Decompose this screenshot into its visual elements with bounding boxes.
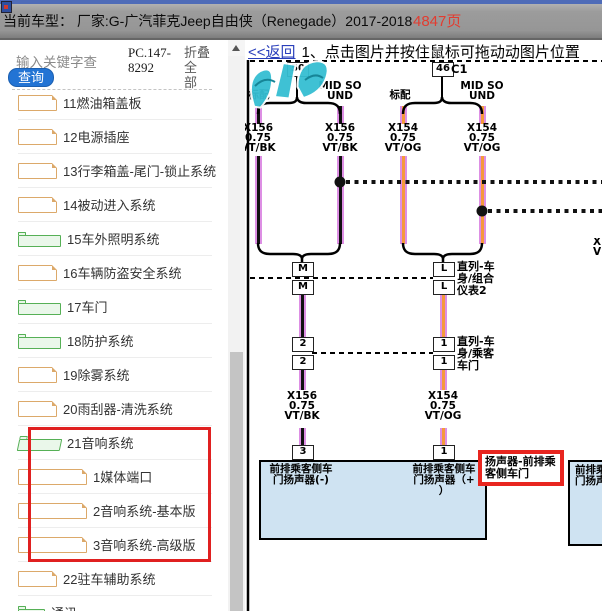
sidebar-item-label: 11燃油箱盖板	[63, 93, 142, 112]
file-icon	[18, 265, 57, 281]
wiring-diagram-image[interactable]: 50 46 C1 标配 MID SO UND 标配 MID SO UND X15…	[245, 40, 602, 611]
file-icon	[18, 537, 87, 553]
pin-box-3: 3	[292, 445, 314, 460]
sidebar-item-audio-base[interactable]: 2音响系统-基本版	[18, 494, 212, 528]
wire-label-x156-3: X156 0.75 VT/BK	[280, 391, 324, 421]
inline-pin-2-bottom: 2	[292, 355, 314, 370]
file-icon	[18, 95, 57, 111]
sidebar-item-label: 17车门	[67, 297, 107, 316]
file-icon	[18, 469, 87, 485]
sidebar-item-label: 15车外照明系统	[67, 229, 159, 248]
title-bar: 当前车型： 厂家:G-广汽菲克Jeep自由侠（Renegade）2017-201…	[0, 0, 602, 40]
wire-label-x154-1: X154 0.75 VT/OG	[381, 123, 425, 153]
window-top-edge	[0, 0, 602, 4]
file-icon	[18, 571, 57, 587]
sidebar-scrollbar[interactable]	[228, 40, 245, 611]
page-count: 4847页	[413, 10, 461, 31]
back-link[interactable]: <<返回	[248, 44, 296, 60]
wire-label-x156-1: X156 0.75 VT/BK	[245, 123, 280, 153]
current-vehicle-text: 当前车型： 厂家:G-广汽菲克Jeep自由侠（Renegade）2017-201…	[3, 11, 412, 31]
wire-label-x156-2: X156 0.75 VT/BK	[318, 123, 362, 153]
sidebar-item-tailgate-lock[interactable]: 13行李箱盖-尾门-锁止系统	[18, 154, 212, 188]
inline-connector-label-cluster: 直列-车 身/组合 仪表2	[457, 261, 509, 297]
connector-label-c1: C1	[451, 64, 477, 74]
diagram-header: <<返回1、点击图片并按住鼠标可拖动动图片位置	[248, 41, 602, 60]
sidebar-item-passive-entry[interactable]: 14被动进入系统	[18, 188, 212, 222]
wire-label-x154-3: X154 0.75 VT/OG	[421, 391, 465, 421]
inline-pin-l-bottom: L	[433, 280, 455, 295]
sidebar-item-communication[interactable]: 通讯	[18, 596, 212, 611]
folder-icon	[18, 235, 61, 247]
file-icon	[18, 503, 87, 519]
sidebar-item-power-outlet[interactable]: 12电源插座	[18, 120, 212, 154]
folder-icon	[18, 303, 61, 315]
sidebar-item-protection[interactable]: 18防护系统	[18, 324, 212, 358]
inline-pin-m-bottom: M	[292, 280, 314, 295]
sidebar-item-label: 22驻车辅助系统	[63, 569, 155, 588]
inline-pin-1-top: 1	[433, 337, 455, 352]
folder-open-icon	[17, 439, 63, 451]
inline-pin-2-top: 2	[292, 337, 314, 352]
folder-icon	[18, 337, 61, 349]
file-icon	[18, 129, 57, 145]
speaker-component-box-right: 前排乘客 门扬声器	[568, 460, 602, 546]
file-icon	[18, 197, 57, 213]
file-icon	[18, 401, 57, 417]
inline-pin-1-bottom: 1	[433, 355, 455, 370]
speaker-pin-positive: 前排乘客侧车 门扬声器（+ ）	[409, 464, 479, 497]
vehicle-label: 当前车型：	[3, 13, 73, 29]
inline-pin-l-top: L	[433, 262, 455, 277]
sidebar-item-wiper-washer[interactable]: 20雨刮器-清洗系统	[18, 392, 212, 426]
branch-label-std-2: 标配	[385, 90, 415, 100]
file-icon	[18, 367, 57, 383]
speaker-pin-partial: 前排乘客 门扬声器	[575, 465, 602, 487]
collapse-all-link[interactable]: 折叠全 部	[184, 45, 218, 90]
scrollbar-thumb[interactable]	[230, 352, 243, 611]
sidebar-item-anti-theft[interactable]: 16车辆防盗安全系统	[18, 256, 212, 290]
wire-label-partial: X V	[593, 238, 602, 260]
sidebar-item-label: 3音响系统-高级版	[93, 535, 196, 554]
pin-box-1: 1	[433, 445, 455, 460]
sidebar: PC.147- 8292 折叠全 部 查询 11燃油箱盖板 12电源插座 13行…	[0, 40, 228, 611]
vehicle-value: 厂家:G-广汽菲克Jeep自由侠（Renegade）2017-2018	[77, 13, 412, 29]
sidebar-item-label: 18防护系统	[67, 331, 133, 350]
inline-connector-label-door: 直列-车 身/乘客 车门	[457, 336, 509, 372]
sidebar-item-audio-premium[interactable]: 3音响系统-高级版	[18, 528, 212, 562]
sidebar-item-doors[interactable]: 17车门	[18, 290, 212, 324]
sidebar-item-label: 20雨刮器-清洗系统	[63, 399, 173, 418]
scroll-up-icon[interactable]	[228, 40, 245, 56]
pc-code: PC.147- 8292	[128, 45, 176, 75]
sidebar-item-label: 16车辆防盗安全系统	[63, 263, 181, 282]
sidebar-item-label: 21音响系统	[67, 433, 133, 452]
wire-label-x154-2: X154 0.75 VT/OG	[460, 123, 504, 153]
sidebar-item-label: 2音响系统-基本版	[93, 501, 196, 520]
speaker-pin-negative: 前排乘客侧车 门扬声器(-)	[266, 464, 336, 486]
speaker-name-highlight-box: 扬声器-前排乘 客侧车门	[478, 450, 564, 486]
sidebar-item-label: 1媒体端口	[93, 467, 152, 486]
sidebar-item-defogger[interactable]: 19除雾系统	[18, 358, 212, 392]
query-button[interactable]: 查询	[8, 68, 54, 87]
sidebar-item-label: 14被动进入系统	[63, 195, 155, 214]
sidebar-item-media-port[interactable]: 1媒体端口	[18, 460, 212, 494]
sidebar-item-exterior-lighting[interactable]: 15车外照明系统	[18, 222, 212, 256]
file-icon	[18, 163, 57, 179]
watermark-logo	[245, 56, 337, 114]
system-tree: 11燃油箱盖板 12电源插座 13行李箱盖-尾门-锁止系统 14被动进入系统 1…	[0, 86, 228, 611]
sidebar-item-audio-system[interactable]: 21音响系统	[18, 426, 212, 460]
sidebar-item-fuel-tank-cover[interactable]: 11燃油箱盖板	[18, 86, 212, 120]
sidebar-item-label: 12电源插座	[63, 127, 129, 146]
sidebar-item-label: 13行李箱盖-尾门-锁止系统	[63, 161, 216, 180]
branch-label-midsound-2: MID SO UND	[457, 81, 507, 101]
drag-instruction: 1、点击图片并按住鼠标可拖动动图片位置	[302, 44, 580, 60]
sidebar-item-label: 通讯	[51, 603, 77, 611]
sidebar-item-label: 19除雾系统	[63, 365, 129, 384]
sidebar-item-park-assist[interactable]: 22驻车辅助系统	[18, 562, 212, 596]
inline-pin-m-top: M	[292, 262, 314, 277]
